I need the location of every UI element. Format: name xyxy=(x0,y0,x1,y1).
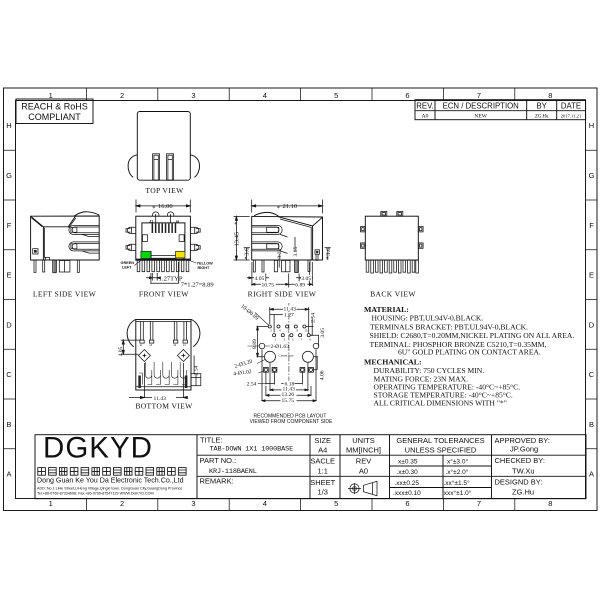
svg-text:TOP VIEW: TOP VIEW xyxy=(145,186,184,195)
svg-text:6.89: 6.89 xyxy=(295,282,305,288)
svg-text:4.05: 4.05 xyxy=(118,347,124,357)
svg-text:J1: J1 xyxy=(149,219,153,223)
svg-text:ADD::No.1 LiHe Street,LiHeng V: ADD::No.1 LiHe Street,LiHeng Village,Qin… xyxy=(37,487,182,491)
svg-text:LEFT: LEFT xyxy=(122,265,132,269)
svg-text:JP.Gong: JP.Gong xyxy=(510,445,538,454)
svg-text:BOTTOM VIEW: BOTTOM VIEW xyxy=(135,402,193,411)
svg-text:3.20: 3.20 xyxy=(277,249,283,259)
svg-text:ECN / DESCRIPTION: ECN / DESCRIPTION xyxy=(443,101,519,110)
svg-text:*: * xyxy=(325,256,332,259)
svg-text:NEW: NEW xyxy=(474,114,487,120)
svg-text:5: 5 xyxy=(334,499,338,508)
svg-text:LEFT SIDE VIEW: LEFT SIDE VIEW xyxy=(33,289,97,298)
svg-text:6: 6 xyxy=(405,499,409,508)
svg-text:.x°±2.0°: .x°±2.0° xyxy=(446,468,469,476)
svg-text:MECHANICAL:: MECHANICAL: xyxy=(364,358,422,367)
svg-text:1.27: 1.27 xyxy=(284,312,294,318)
svg-text:2-Ø1.63: 2-Ø1.63 xyxy=(271,344,290,350)
svg-text:B: B xyxy=(6,420,11,429)
svg-text:A0: A0 xyxy=(359,466,368,475)
svg-text:7: 7 xyxy=(477,499,481,508)
svg-text:2.54: 2.54 xyxy=(247,382,257,388)
svg-text:8.89: 8.89 xyxy=(252,339,258,349)
svg-text:SACLE: SACLE xyxy=(310,457,335,466)
svg-text:RIGHT SIDE VIEW: RIGHT SIDE VIEW xyxy=(248,289,317,298)
svg-text:VIEWED FROM COMPONENT SIDE: VIEWED FROM COMPONENT SIDE xyxy=(250,419,333,425)
svg-text:DATE: DATE xyxy=(561,101,581,110)
svg-text:TW.Xu: TW.Xu xyxy=(512,466,535,475)
svg-text:D: D xyxy=(6,321,12,330)
svg-text:5: 5 xyxy=(334,91,338,100)
svg-text:DGKYD: DGKYD xyxy=(43,432,153,465)
svg-text:G: G xyxy=(6,171,12,180)
svg-text:4.06: 4.06 xyxy=(320,370,326,380)
svg-text:ZG.Hu: ZG.Hu xyxy=(535,115,549,120)
svg-text:1: 1 xyxy=(49,499,53,508)
svg-text:6U" GOLD PLATING ON CONTACT AR: 6U" GOLD PLATING ON CONTACT AREA. xyxy=(398,348,541,357)
svg-text:D: D xyxy=(589,321,595,330)
svg-text:*: * xyxy=(244,256,251,259)
svg-text:13.45: 13.45 xyxy=(233,232,240,247)
svg-text:21.10: 21.10 xyxy=(283,203,298,210)
svg-text:REMARK:: REMARK: xyxy=(200,476,234,485)
svg-text:A0: A0 xyxy=(422,114,429,120)
svg-text:6: 6 xyxy=(405,91,409,100)
svg-text:*: * xyxy=(152,205,155,212)
svg-text:3.05: 3.05 xyxy=(301,276,311,282)
svg-text:J8: J8 xyxy=(175,220,179,224)
svg-text:1.27TYP: 1.27TYP xyxy=(159,275,183,282)
svg-text:F: F xyxy=(7,221,12,230)
svg-text:1/3: 1/3 xyxy=(317,488,327,497)
svg-text:B: B xyxy=(589,420,594,429)
svg-text:MATERIAL:: MATERIAL: xyxy=(364,305,409,314)
svg-text:KRJ-118BAENL: KRJ-118BAENL xyxy=(209,468,257,476)
svg-text:HOUSING: PBT,UL94V-0,BLACK.: HOUSING: PBT,UL94V-0,BLACK. xyxy=(372,314,484,323)
svg-text:.x±0.30: .x±0.30 xyxy=(397,469,419,476)
svg-text:TITLE:: TITLE: xyxy=(200,436,223,445)
svg-text:SHIELD: C2680,T=0.20MM,NICKEL: SHIELD: C2680,T=0.20MM,NICKEL PLATING ON… xyxy=(370,331,575,340)
svg-text:2.54: 2.54 xyxy=(194,366,200,376)
svg-text:.xx°±1.5°: .xx°±1.5° xyxy=(444,479,471,487)
svg-text:UNLESS SPECIFIED: UNLESS SPECIFIED xyxy=(405,446,477,455)
svg-text:C: C xyxy=(6,370,12,379)
svg-text:x°±3.0°: x°±3.0° xyxy=(447,457,468,465)
svg-text:16.00: 16.00 xyxy=(158,203,173,210)
svg-text:REV: REV xyxy=(356,457,371,466)
svg-text:.xxx°±1.0°: .xxx°±1.0° xyxy=(442,489,472,497)
svg-text:SIZE: SIZE xyxy=(314,436,331,445)
svg-text:11.43: 11.43 xyxy=(284,306,297,312)
svg-text:x±0.35: x±0.35 xyxy=(398,458,418,465)
svg-text:H: H xyxy=(6,121,11,130)
svg-text:E: E xyxy=(6,271,11,280)
svg-text:4.05: 4.05 xyxy=(255,276,265,282)
svg-text:3: 3 xyxy=(191,91,195,100)
svg-text:H: H xyxy=(589,121,594,130)
svg-text:4: 4 xyxy=(263,499,267,508)
svg-text:ALL CRITICAL DIMENSIONS WITH ": ALL CRITICAL DIMENSIONS WITH "*" xyxy=(374,399,507,408)
svg-text:*: * xyxy=(234,222,241,225)
svg-text:*: * xyxy=(277,205,280,212)
svg-text:E: E xyxy=(589,271,594,280)
svg-text:F: F xyxy=(589,221,594,230)
svg-text:REACH & RoHS: REACH & RoHS xyxy=(21,102,88,112)
svg-text:Center line: Center line xyxy=(279,354,294,358)
svg-text:1:1: 1:1 xyxy=(317,466,327,475)
svg-text:COMPLIANT: COMPLIANT xyxy=(28,112,81,122)
svg-text:TAB-DOWN 1X1 1000BASE: TAB-DOWN 1X1 1000BASE xyxy=(210,446,294,454)
svg-text:.xx±0.25: .xx±0.25 xyxy=(395,480,420,487)
svg-text:3.05: 3.05 xyxy=(320,328,326,338)
svg-text:DESIGND BY:: DESIGND BY: xyxy=(495,478,543,487)
svg-text:ZG.Hu: ZG.Hu xyxy=(512,488,534,497)
svg-text:3.6: 3.6 xyxy=(325,247,332,256)
svg-text:3.65: 3.65 xyxy=(293,247,299,257)
svg-text:BY: BY xyxy=(536,101,547,110)
svg-text:PART NO.:: PART NO.: xyxy=(200,456,237,465)
svg-text:10.75: 10.75 xyxy=(262,282,275,288)
svg-text:2: 2 xyxy=(120,499,124,508)
svg-text:7: 7 xyxy=(477,91,481,100)
svg-text:2: 2 xyxy=(120,91,124,100)
svg-text:.xxx±0.10: .xxx±0.10 xyxy=(393,490,421,497)
svg-text:Tel:+86-0769-87334608; Fax:+86: Tel:+86-0769-87334608; Fax:+86-0769-8754… xyxy=(37,491,154,495)
svg-text:TERMINALS BRACKET: PBT,UL94V-0: TERMINALS BRACKET: PBT,UL94V-0,BLACK. xyxy=(370,322,528,331)
svg-text:GENERAL TOLERANCES: GENERAL TOLERANCES xyxy=(396,436,484,445)
svg-text:REV.: REV. xyxy=(416,101,433,110)
svg-text:RIGHT: RIGHT xyxy=(198,266,210,270)
svg-text:FRONT VIEW: FRONT VIEW xyxy=(139,289,189,298)
svg-text:2017.11.21: 2017.11.21 xyxy=(561,114,582,119)
svg-text:8: 8 xyxy=(548,91,552,100)
svg-text:A4: A4 xyxy=(318,446,327,455)
svg-text:7*1.27=8.89: 7*1.27=8.89 xyxy=(181,282,214,289)
svg-text:CHECKED BY:: CHECKED BY: xyxy=(495,456,545,465)
svg-text:SHEET: SHEET xyxy=(310,478,335,487)
svg-text:15.75: 15.75 xyxy=(282,398,295,404)
svg-text:4: 4 xyxy=(263,91,267,100)
svg-text:C: C xyxy=(589,370,595,379)
svg-text:G: G xyxy=(589,171,595,180)
svg-text:Dong Guan Ke You Da Electronic: Dong Guan Ke You Da Electronic Tech.Co.,… xyxy=(37,477,184,485)
svg-text:3.6: 3.6 xyxy=(243,247,250,256)
svg-text:A: A xyxy=(6,470,11,479)
svg-text:8: 8 xyxy=(548,499,552,508)
svg-text:A: A xyxy=(589,470,594,479)
svg-text:BACK VIEW: BACK VIEW xyxy=(370,289,416,298)
svg-text:UNITS: UNITS xyxy=(352,436,375,445)
svg-text:MM[INCH]: MM[INCH] xyxy=(346,446,381,455)
svg-text:3: 3 xyxy=(191,499,195,508)
svg-text:2.54: 2.54 xyxy=(311,313,317,323)
